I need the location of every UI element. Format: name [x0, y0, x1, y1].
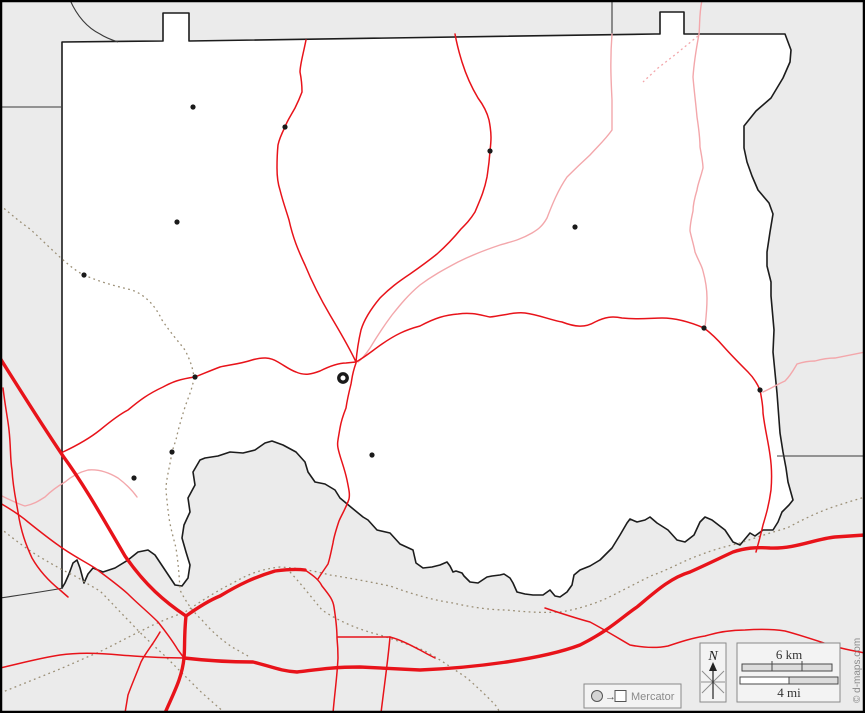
town-dot [701, 325, 706, 330]
county-outline [62, 12, 793, 597]
town-dot [572, 224, 577, 229]
town-dot [282, 124, 287, 129]
town-dot [174, 219, 179, 224]
town-dot [190, 104, 195, 109]
town-dot [169, 449, 174, 454]
town-dot [487, 148, 492, 153]
scale-km-label: 6 km [776, 647, 802, 662]
town-dot [81, 272, 86, 277]
projection-legend: → Mercator [584, 684, 681, 708]
projection-icon: → [592, 691, 627, 704]
north-label: N [707, 649, 718, 664]
town-dot [192, 374, 197, 379]
scale-mi-label: 4 mi [777, 685, 801, 700]
county-seat-layer [339, 374, 347, 382]
town-dot [131, 475, 136, 480]
scale-legend: 6 km 4 mi [737, 643, 840, 702]
town-dot [369, 452, 374, 457]
county-map: N 6 km 4 mi → Mercator [0, 0, 865, 713]
scale-bar-mi [740, 677, 838, 684]
copyright-text: © d-maps.com [852, 638, 863, 703]
projection-label: Mercator [631, 691, 675, 703]
town-dot [757, 387, 762, 392]
map-page: N 6 km 4 mi → Mercator [0, 0, 865, 713]
county-seat-marker [339, 374, 347, 382]
north-arrow-legend: N [700, 643, 726, 702]
projection-arrow-icon: → [605, 691, 616, 703]
